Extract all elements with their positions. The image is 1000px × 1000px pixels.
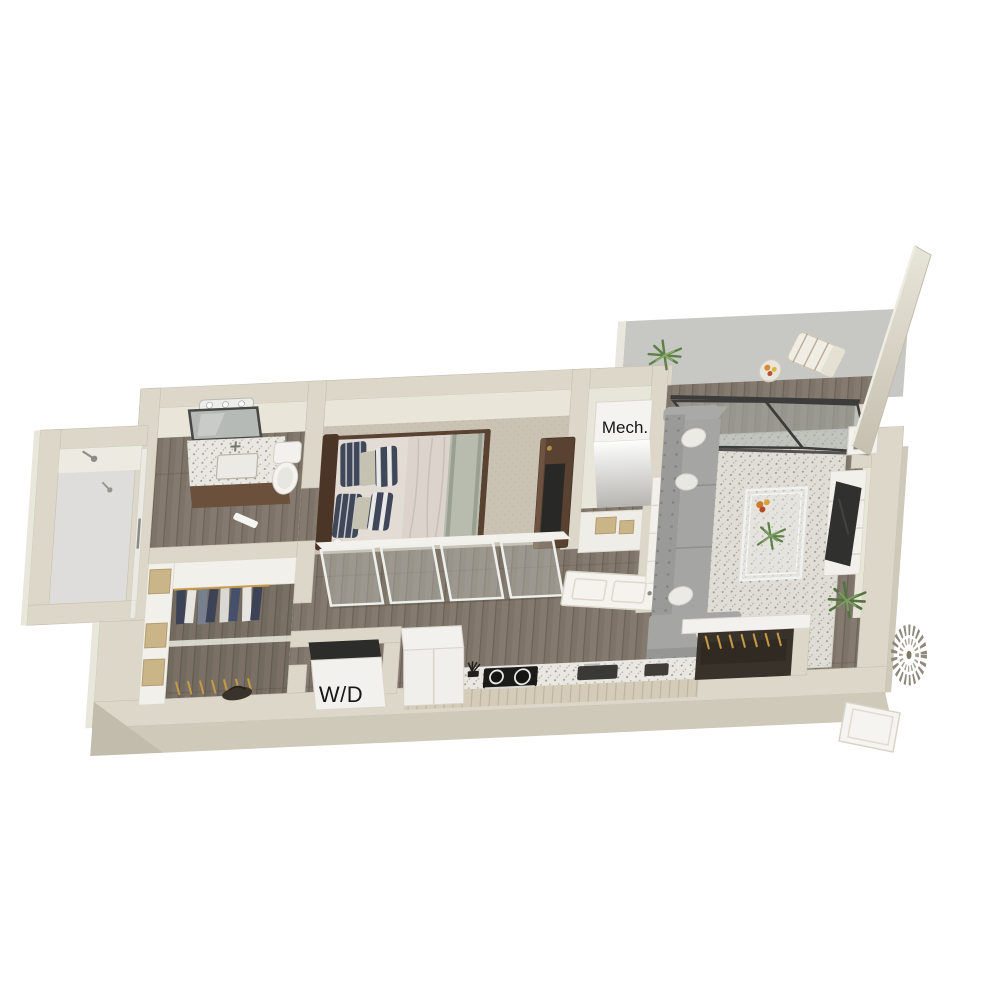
storage-niche — [578, 510, 643, 553]
storage-box — [148, 569, 171, 594]
kitchen-faucet — [584, 664, 600, 665]
mech-label: Mech. — [602, 418, 648, 437]
tv-console — [824, 470, 867, 576]
kitchen-sink — [577, 664, 618, 680]
sink-basin — [216, 453, 258, 479]
storage-box — [619, 520, 634, 534]
mech-unit-front — [589, 439, 658, 508]
storage-box — [595, 517, 616, 534]
refrigerator — [396, 625, 469, 706]
bed — [315, 427, 491, 551]
shower-north-face — [58, 446, 142, 474]
wd-label: W/D — [319, 682, 363, 707]
paneled-door — [561, 571, 658, 610]
storage-box — [142, 659, 165, 686]
pillow-striped — [375, 445, 398, 488]
storage-box — [145, 623, 168, 648]
floor-plan-rendering: Mech. W/D — [0, 0, 1000, 1000]
closet-top-shelf — [173, 557, 297, 588]
range — [483, 666, 538, 688]
glass-coffee-table — [741, 488, 807, 581]
sink-second-bowl — [644, 663, 669, 676]
